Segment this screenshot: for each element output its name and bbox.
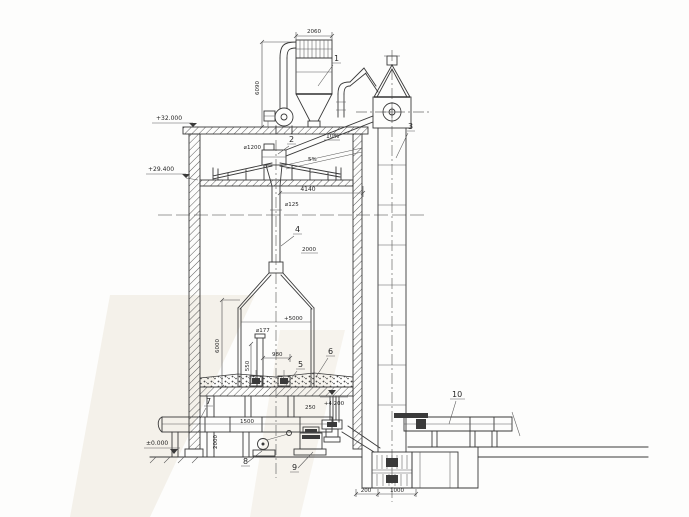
- part-2-callout: 2: [278, 135, 296, 154]
- silo-right-wall: [353, 134, 362, 449]
- wall-footing: [185, 449, 203, 457]
- part-label-5: 5: [298, 360, 303, 369]
- part-label-9: 9: [292, 463, 297, 472]
- dim-span: 4140: [300, 186, 315, 193]
- elevation-ground: ±0.000: [146, 440, 168, 447]
- level-cone: +5000: [284, 316, 303, 322]
- part-4-callout: 4: [281, 225, 302, 246]
- dim-cone-height: 6000: [215, 339, 221, 353]
- dust-collector: [264, 40, 378, 134]
- dim-collector-height: 6090: [255, 81, 261, 95]
- part-label-7: 7: [206, 397, 211, 406]
- elevation-fill: +4.200: [324, 401, 345, 407]
- elevation-roof: +32.000: [156, 115, 182, 122]
- dim-boot-group: 200 1000: [354, 488, 418, 497]
- dim-distributor-dia: ⌀1200: [244, 145, 262, 151]
- technical-drawing: 2060 6090 1 2 ⌀1200 10% 5% 4140 ⌀125 4 2…: [0, 0, 689, 517]
- part-1-callout: 1: [318, 54, 341, 86]
- ground-line: [150, 447, 648, 463]
- bucket-elevator: [356, 50, 430, 502]
- slope-chute: 10%: [326, 133, 340, 140]
- dim-boot-right: 1000: [390, 488, 404, 494]
- belt-conveyor: [394, 412, 520, 447]
- pit-foundation: [362, 447, 478, 488]
- elevation-roof-group: +32.000: [152, 115, 197, 127]
- dim-center-pipe-dia: ⌀125: [285, 202, 299, 208]
- part-3-callout: 3: [396, 122, 415, 158]
- dim-inner-pipe-dia: ⌀177: [256, 328, 270, 334]
- part-label-8: 8: [243, 457, 248, 466]
- part-label-2: 2: [289, 135, 294, 144]
- roof-slab: [183, 127, 368, 134]
- silo-left-wall: [189, 134, 200, 449]
- dim-filter-width: 2060: [307, 29, 321, 35]
- part-label-3: 3: [408, 122, 413, 131]
- part-label-4: 4: [295, 225, 300, 234]
- dim-collector-height-group: 6090: [255, 40, 294, 129]
- part-label-6: 6: [328, 347, 333, 356]
- dim-550: 550: [245, 360, 251, 371]
- slope-cone: 5%: [308, 157, 317, 163]
- upper-floor-slab: [200, 180, 353, 186]
- dim-mid-group: 2000: [301, 247, 318, 253]
- dim-mid: 2000: [302, 247, 316, 253]
- distribution-cone: [213, 163, 341, 180]
- dim-duct-length: 1500: [240, 419, 254, 425]
- distributor: [262, 144, 286, 262]
- dim-filter-width-group: 2060: [294, 29, 334, 40]
- part-label-10: 10: [452, 390, 462, 399]
- part-10-callout: 10: [449, 390, 465, 424]
- dim-boot-left: 200: [361, 488, 372, 494]
- slope-chute-group: 10%: [324, 133, 340, 140]
- dim-250: 250: [305, 405, 316, 411]
- dim-basement-height: 2000: [213, 435, 219, 449]
- drawing-page: 2060 6090 1 2 ⌀1200 10% 5% 4140 ⌀125 4 2…: [0, 0, 689, 517]
- dim-980: 980: [272, 352, 283, 358]
- dim-span-group: 4140: [278, 186, 365, 197]
- part-label-1: 1: [334, 54, 339, 63]
- elevation-upper-floor: +29.400: [148, 166, 174, 173]
